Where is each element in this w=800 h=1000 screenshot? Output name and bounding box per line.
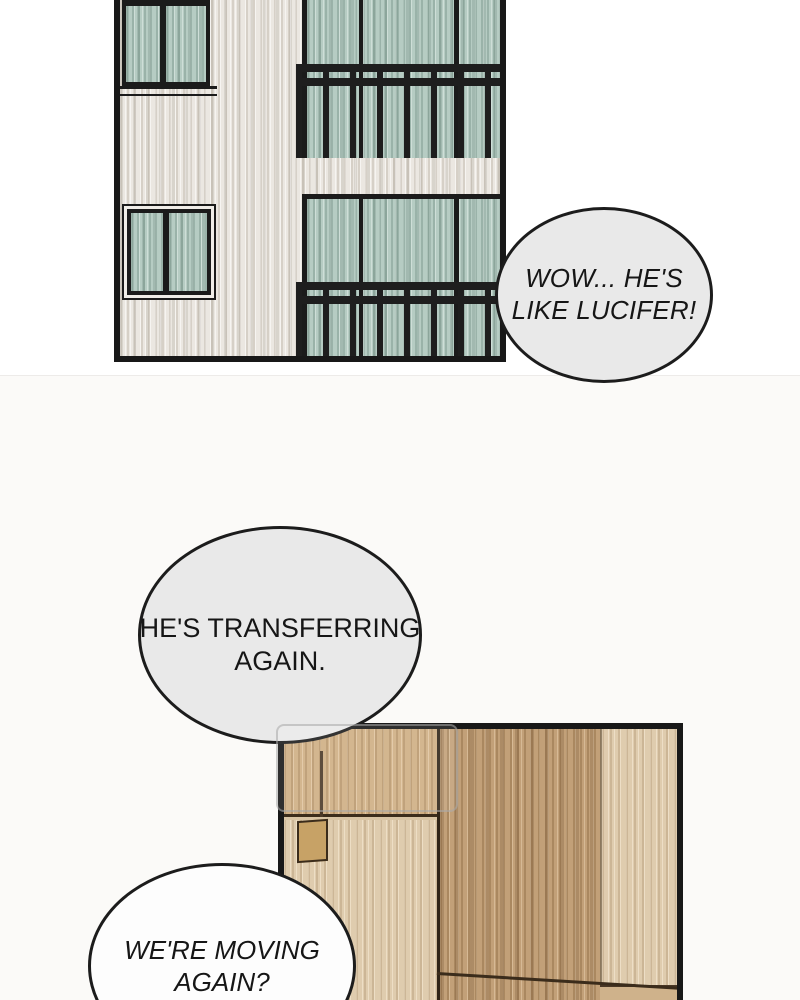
- window-pane: [169, 213, 207, 291]
- translucent-overlay-artifact: [276, 724, 458, 812]
- balcony-railing-posts: [296, 282, 500, 356]
- bubble-text-line: AGAIN.: [140, 645, 421, 678]
- webtoon-page: WOW... HE'S LIKE LUCIFER! HE'S TRANSFERR…: [0, 0, 800, 1000]
- balcony-railing-bar: [296, 64, 500, 72]
- window-pane: [131, 213, 163, 291]
- speech-bubble-transferring: HE'S TRANSFERRING AGAIN.: [138, 526, 422, 744]
- bubble-text-line: AGAIN?: [124, 966, 320, 999]
- speech-bubble-lucifer: WOW... HE'S LIKE LUCIFER!: [495, 207, 713, 383]
- window-sill: [120, 86, 217, 96]
- window-top-left: [122, 0, 210, 86]
- bubble-text-line: HE'S TRANSFERRING: [140, 612, 421, 645]
- box-tape-flap: [297, 819, 328, 863]
- window-pane: [166, 6, 206, 82]
- bubble-text-line: WOW... HE'S: [512, 263, 697, 295]
- window-pane: [126, 6, 160, 82]
- bubble-text-line: LIKE LUCIFER!: [512, 295, 697, 327]
- balcony-railing-bar: [296, 282, 500, 290]
- bubble-text-line: WE'RE MOVING: [124, 934, 320, 967]
- balcony-railing-bar: [296, 296, 500, 304]
- balcony-railing-bar: [296, 78, 500, 86]
- cardboard-box: [600, 729, 677, 1000]
- panel-building-exterior: [114, 0, 506, 362]
- window-mid-left: [122, 204, 216, 300]
- cardboard-box-large: [437, 729, 600, 1000]
